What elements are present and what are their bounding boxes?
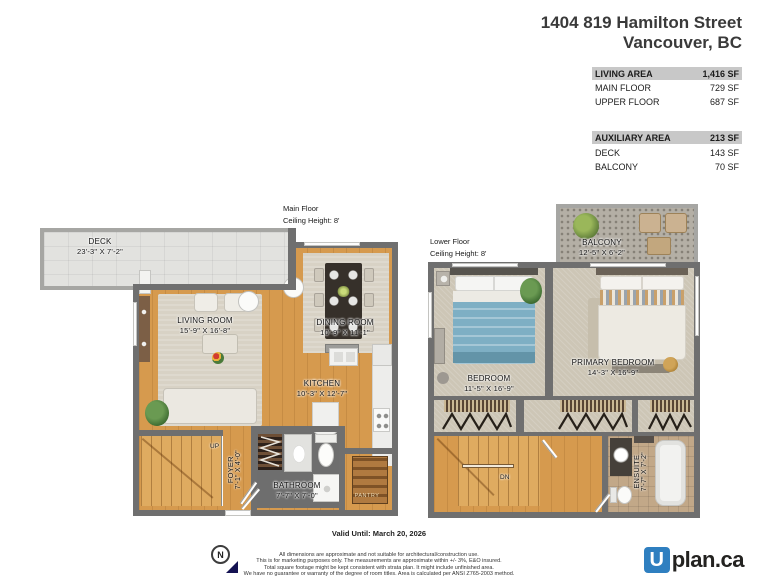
ensuite-shelf: [634, 436, 654, 443]
deck-area-label: DECK: [595, 148, 620, 158]
window-primary-top: [590, 263, 666, 267]
uplan-logo-letter: U: [649, 549, 663, 572]
uplan-logo-icon: U: [644, 547, 670, 573]
main-floor-ceiling-text: Ceiling Height: 8': [283, 215, 339, 227]
deck-wall-bottom: [40, 286, 137, 290]
ensuite-toilet-bowl: [617, 486, 632, 504]
deck-area-row: DECK 143 SF: [592, 146, 742, 159]
foyer-label-inner: FOYER 7'-1" X 4'-0": [226, 450, 243, 489]
stairs-down-railing: [462, 464, 514, 468]
wall-hall-top: [428, 432, 700, 436]
dining-room-label: DINING ROOM 10'-9" X 11'-1": [300, 318, 390, 337]
kitchen-name: KITCHEN: [277, 379, 367, 389]
pantry-label: PANTRY: [344, 493, 390, 500]
bed-throw: [453, 352, 535, 363]
upper-floor-row: UPPER FLOOR 687 SF: [592, 95, 742, 108]
valid-until-text: Valid Until: March 20, 2026: [0, 529, 758, 538]
kitchen-label: KITCHEN 10'-3" X 12'-7": [277, 379, 367, 398]
main-floor-value: 729 SF: [710, 83, 739, 93]
living-plant: [145, 400, 169, 426]
window-bedroom-top: [452, 263, 518, 267]
living-room-name: LIVING ROOM: [155, 316, 255, 326]
deck-area-value: 143 SF: [710, 148, 739, 158]
pantry-name: PANTRY: [344, 493, 390, 500]
dining-room-dims: 10'-9" X 11'-1": [300, 328, 390, 337]
sofa: [163, 388, 257, 424]
deck-wall-left: [40, 228, 44, 290]
bedroom-dresser: [434, 328, 445, 364]
primary-duvet: [598, 305, 686, 360]
main-floor-label: MAIN FLOOR: [595, 83, 651, 93]
balcony-area-value: 70 SF: [715, 162, 739, 172]
window-dining-top: [304, 242, 360, 246]
foyer-label: FOYER 7'-1" X 4'-0": [203, 458, 267, 482]
primary-throw: [600, 290, 684, 306]
deck-wall-top: [40, 228, 296, 232]
entry-door-opening: [225, 510, 251, 516]
primary-bedroom-name: PRIMARY BEDROOM: [558, 358, 668, 368]
wall-stairs-top: [133, 430, 223, 436]
wall-closet-stub-2: [632, 398, 638, 434]
deck-name: DECK: [55, 237, 145, 247]
coffee-table: [202, 334, 238, 354]
toilet-tank: [315, 434, 337, 443]
media-console: [139, 296, 150, 362]
bed-headboard: [450, 268, 538, 275]
main-floor-title: Main Floor Ceiling Height: 8': [283, 203, 339, 228]
ensuite-label: ENSUITE 7'-7" X 7'-2": [608, 460, 674, 484]
balcony-wall-right: [694, 204, 698, 262]
fridge: [372, 344, 392, 366]
living-area-value: 1,416 SF: [702, 69, 739, 79]
living-area-label: LIVING AREA: [595, 69, 653, 79]
wall-pantry-top: [341, 448, 394, 454]
primary-headboard: [596, 268, 688, 275]
living-room-dims: 15'-9" X 16'-8": [155, 326, 255, 335]
address-line-1: 1404 819 Hamilton Street: [541, 14, 742, 33]
wall-deck-shared: [133, 284, 296, 290]
wall-deck-right: [288, 228, 296, 290]
main-floor-title-text: Main Floor: [283, 203, 339, 215]
auxiliary-area-value: 213 SF: [710, 133, 739, 143]
lower-floor-title: Lower Floor Ceiling Height: 8': [430, 236, 486, 261]
address-line-2: Vancouver, BC: [623, 34, 742, 53]
wall-closet-top: [434, 396, 694, 400]
kitchen-sink-counter: [329, 348, 358, 366]
balcony-area-label: BALCONY: [595, 162, 638, 172]
bedroom-name: BEDROOM: [439, 374, 539, 384]
dining-chair-5: [364, 293, 374, 307]
wall-bedroom-divider: [545, 268, 553, 396]
balcony-chair-1: [639, 213, 661, 233]
ensuite-dims: 7'-7" X 7'-2": [641, 452, 649, 491]
balcony-area-row: BALCONY 70 SF: [592, 160, 742, 173]
bathroom-label: BATHROOM 7'-7" X 7'-0": [254, 481, 340, 500]
primary-pillows: [600, 276, 684, 290]
wall-main-right: [392, 242, 398, 516]
uplan-logo: U plan.ca: [644, 547, 744, 573]
wall-bathroom-top: [251, 426, 345, 432]
upper-floor-value: 687 SF: [710, 97, 739, 107]
primary-bedroom-dims: 14'-3" X 16'-9": [558, 368, 668, 377]
flower-vase: [212, 352, 224, 364]
stove: [373, 408, 390, 432]
side-table-1: [238, 291, 259, 312]
window-living-left: [133, 302, 137, 346]
foyer-dims: 7'-1" X 4'-0": [235, 450, 243, 489]
upper-floor-label: UPPER FLOOR: [595, 97, 660, 107]
window-primary-right: [695, 276, 699, 336]
wall-closet-stub-1: [516, 398, 524, 434]
primary-bedroom-label: PRIMARY BEDROOM 14'-3" X 16'-9": [558, 358, 668, 377]
balcony-label: BALCONY 12'-5" X 6'-2": [557, 238, 647, 257]
fireplace: [139, 270, 151, 294]
deck-dims: 23'-3" X 7'-2": [55, 247, 145, 256]
kitchen-dims: 10'-3" X 12'-7": [277, 389, 367, 398]
stairs-up-label: UP: [210, 443, 219, 450]
stairs-down-label: DN: [500, 474, 509, 481]
dining-chair-2: [314, 293, 324, 307]
bedroom-label: BEDROOM 11'-5" X 16'-9": [439, 374, 539, 393]
balcony-wall-top: [556, 204, 698, 208]
uplan-logo-text: plan.ca: [672, 549, 744, 571]
wall-main-bottom: [133, 510, 398, 516]
dining-room-name: DINING ROOM: [300, 318, 390, 328]
bedroom-dims: 11'-5" X 16'-9": [439, 384, 539, 393]
lower-floor-ceiling-text: Ceiling Height: 8': [430, 248, 486, 260]
living-area-header-row: LIVING AREA 1,416 SF: [592, 67, 742, 80]
balcony-dims: 12'-5" X 6'-2": [557, 248, 647, 257]
bathroom-dims: 7'-7" X 7'-0": [254, 491, 340, 500]
main-floor-row: MAIN FLOOR 729 SF: [592, 81, 742, 94]
floorplan-sheet: 1404 819 Hamilton Street Vancouver, BC L…: [0, 0, 758, 586]
ensuite-toilet-tank: [610, 487, 617, 503]
nightstand: [436, 271, 450, 286]
balcony-plant: [573, 213, 599, 239]
bathroom-name: BATHROOM: [254, 481, 340, 491]
bedroom-closet-bifold-doors: [442, 411, 512, 431]
window-bedroom-left: [428, 292, 432, 338]
balcony-chair-2: [665, 213, 687, 233]
living-room-label: LIVING ROOM 15'-9" X 16'-8": [155, 316, 255, 335]
dining-chair-4: [364, 268, 374, 282]
balcony-table: [647, 237, 671, 255]
ensuite-label-inner: ENSUITE 7'-7" X 7'-2": [632, 452, 649, 491]
auxiliary-area-label: AUXILIARY AREA: [595, 133, 671, 143]
toilet-bowl: [318, 443, 334, 467]
bedroom-plant: [520, 278, 542, 304]
dining-chair-1: [314, 268, 324, 282]
lower-floor-title-text: Lower Floor: [430, 236, 486, 248]
armchair-1: [194, 293, 218, 312]
auxiliary-area-header-row: AUXILIARY AREA 213 SF: [592, 131, 742, 144]
wall-lower-bottom: [428, 512, 700, 518]
balcony-name: BALCONY: [557, 238, 647, 248]
primary-closet-bifold-doors-2: [648, 411, 692, 431]
chandelier: [337, 286, 350, 297]
deck-label: DECK 23'-3" X 7'-2": [55, 237, 145, 256]
primary-closet-bifold-doors-1: [558, 411, 628, 431]
bathroom-vanity: [284, 434, 312, 472]
